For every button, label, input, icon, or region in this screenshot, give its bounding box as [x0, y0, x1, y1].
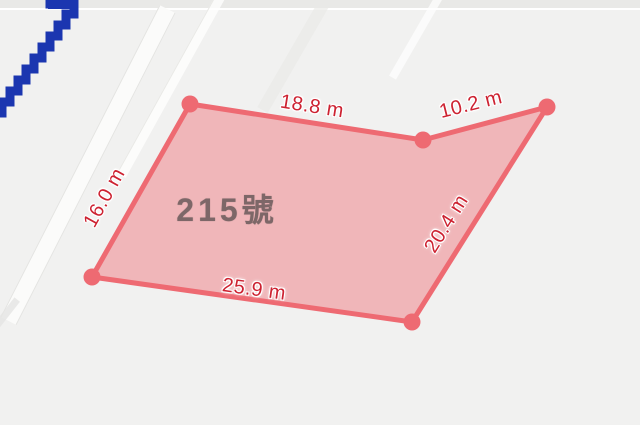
- vertex-handle-3[interactable]: [404, 314, 421, 331]
- vertex-handle-4[interactable]: [84, 269, 101, 286]
- vertex-handle-2[interactable]: [539, 99, 556, 116]
- vertex-handle-0[interactable]: [182, 96, 199, 113]
- map-canvas[interactable]: 18.8 m10.2 m20.4 m25.9 m16.0 m 215號: [0, 0, 640, 425]
- route-line: [0, 0, 78, 125]
- vertex-handle-1[interactable]: [415, 132, 432, 149]
- parcel-polygon[interactable]: [92, 104, 547, 322]
- measurement-overlay: [0, 0, 640, 425]
